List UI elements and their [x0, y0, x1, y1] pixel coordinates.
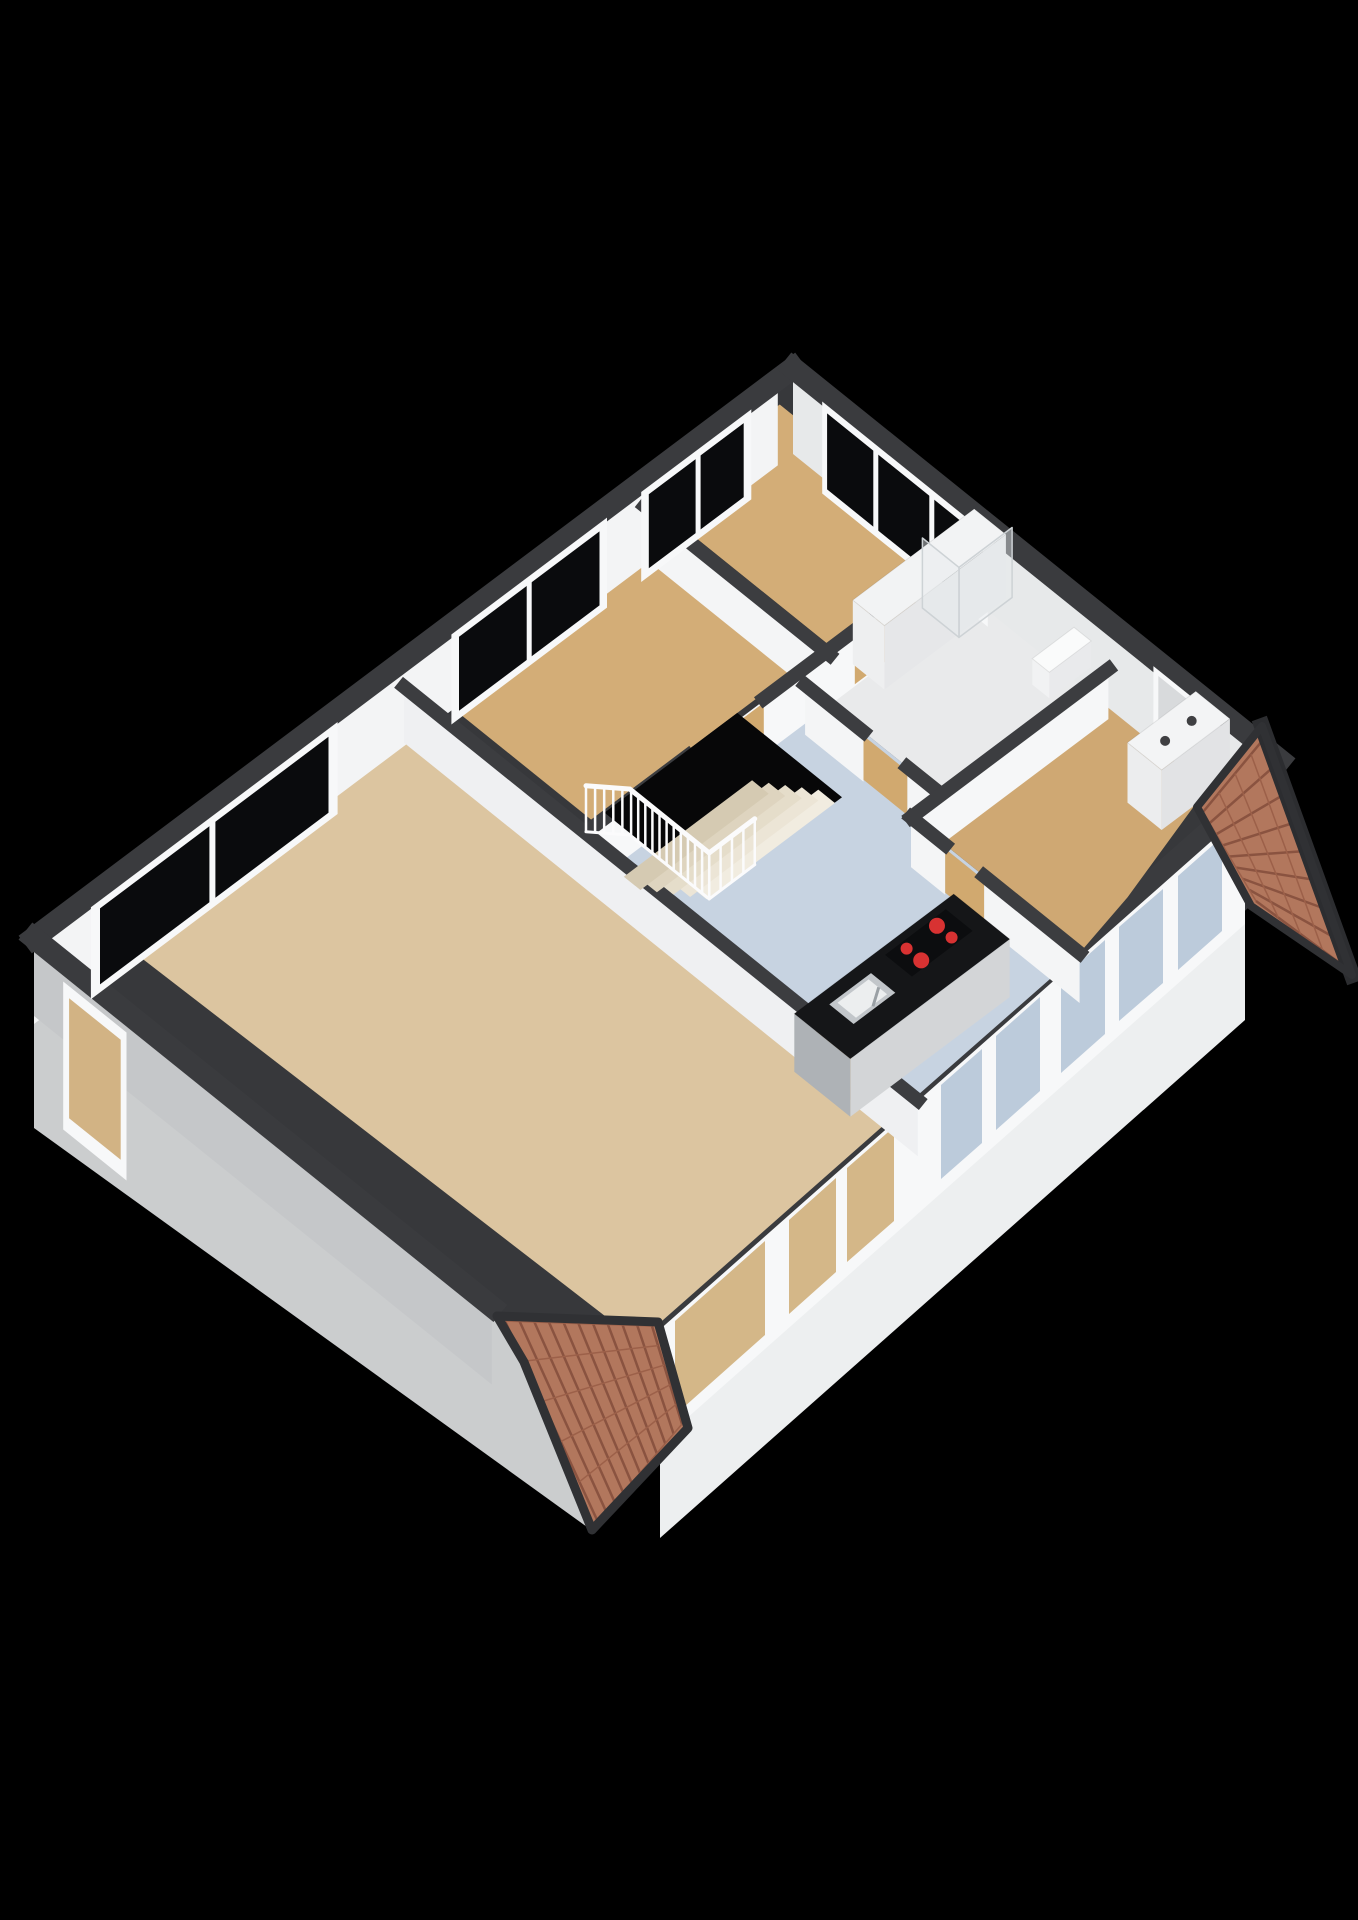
floorplan-canvas: [0, 0, 1358, 1920]
burner: [946, 932, 958, 944]
burner: [929, 918, 945, 934]
burner: [913, 952, 929, 968]
floorplan-3d-render: [0, 0, 1358, 1920]
burner: [901, 943, 913, 955]
boiler-dot: [1187, 716, 1197, 726]
boiler-dot: [1160, 736, 1170, 746]
